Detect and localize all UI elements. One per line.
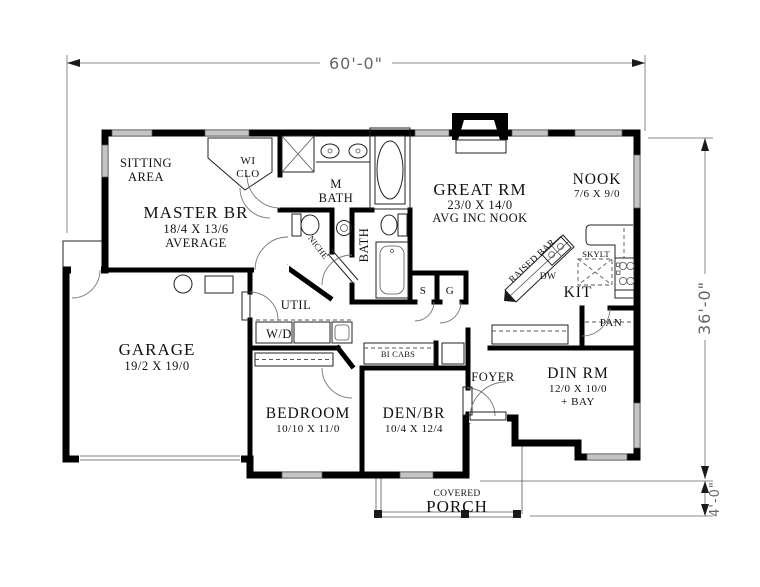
label-s-closet: S — [420, 285, 427, 297]
label-din-note: + BAY — [561, 396, 595, 408]
skylight — [578, 259, 612, 285]
porch-post — [513, 510, 521, 518]
double-vanity — [316, 144, 370, 162]
label-bedroom: BEDROOM — [266, 405, 351, 422]
kitchen-counter — [586, 225, 634, 298]
walls — [66, 133, 637, 475]
floor-plan: 60'-0" 36'-0" 4'-0" — [0, 0, 760, 587]
label-wiclo-1: WI — [240, 155, 255, 167]
dim-depth: 36'-0" — [695, 281, 714, 335]
label-den-size: 10/4 X 12/4 — [385, 423, 443, 435]
label-mbath-2: BATH — [319, 191, 354, 205]
label-garage: GARAGE — [119, 340, 196, 359]
label-master-size: 18/4 X 13/6 — [163, 222, 228, 236]
toilet — [292, 214, 319, 236]
label-great-rm: GREAT RM — [433, 180, 526, 199]
label-kit: KIT — [564, 284, 593, 301]
shower — [282, 136, 314, 172]
label-din-size: 12/0 X 10/0 — [549, 383, 607, 395]
pedestal-sink — [337, 221, 352, 236]
label-skylt: SKYLT — [582, 249, 610, 259]
dim-width: 60'-0" — [329, 54, 383, 73]
label-g-closet: G — [446, 285, 454, 297]
stoop — [63, 241, 105, 268]
dim-porch: 4'-0" — [708, 481, 723, 517]
label-den-br: DEN/BR — [383, 405, 446, 422]
label-garage-size: 19/2 X 19/0 — [124, 359, 189, 373]
porch-post — [374, 510, 382, 518]
label-mbath-1: M — [330, 177, 342, 191]
label-din-rm: DIN RM — [547, 365, 609, 382]
label-master-br: MASTER BR — [144, 203, 249, 222]
utility-door — [242, 292, 250, 320]
label-great-size: 23/0 X 14/0 — [447, 198, 512, 212]
label-foyer: FOYER — [471, 370, 515, 384]
hall-tub — [376, 242, 408, 298]
furnace — [205, 276, 233, 293]
label-bi-cabs: BI CABS — [381, 349, 415, 359]
label-great-note: AVG INC NOOK — [432, 211, 527, 225]
label-sitting-2: AREA — [128, 170, 164, 184]
label-master-note: AVERAGE — [165, 236, 227, 250]
water-heater — [174, 275, 192, 293]
label-dw: DW — [540, 272, 556, 282]
label-bath: BATH — [357, 228, 371, 263]
label-util: UTIL — [281, 298, 311, 312]
label-wiclo-2: CLO — [236, 168, 260, 180]
toilet — [381, 214, 407, 236]
label-nook: NOOK — [573, 171, 622, 188]
floor-plan-page: 60'-0" 36'-0" 4'-0" — [0, 0, 760, 587]
kitchen-cabinets — [492, 325, 568, 344]
master-tub — [370, 128, 410, 209]
label-pan: PAN — [600, 317, 623, 329]
label-wd: W/D — [266, 327, 292, 341]
bedroom-closet — [255, 353, 333, 366]
label-porch-2: PORCH — [426, 497, 488, 516]
label-sitting-1: SITTING — [120, 156, 172, 170]
label-nook-size: 7/6 X 9/0 — [574, 188, 620, 200]
label-bedroom-size: 10/10 X 11/0 — [276, 423, 340, 435]
label-niche: NICHE — [306, 233, 330, 260]
